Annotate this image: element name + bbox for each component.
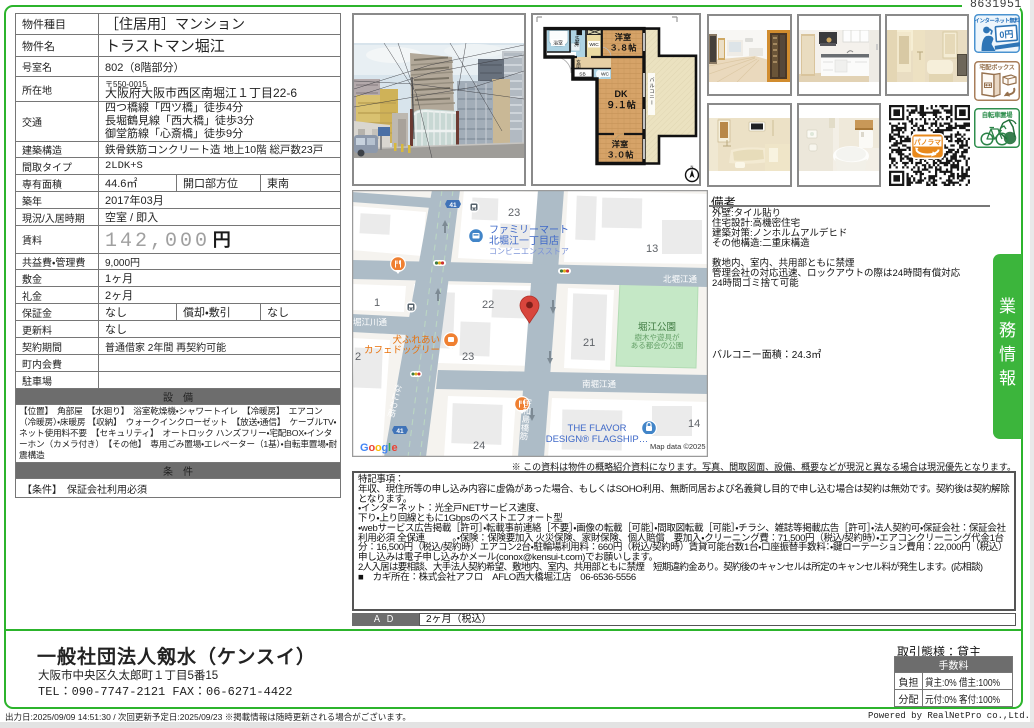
svg-text:23: 23 (462, 351, 474, 363)
svg-text:G: G (360, 442, 369, 454)
svg-text:バルコニー: バルコニー (649, 77, 655, 106)
svg-text:WC: WC (601, 72, 610, 78)
svg-text:0円: 0円 (999, 29, 1014, 40)
svg-text:洋室: 洋室 (612, 139, 628, 149)
svg-text:北堀江一丁目店: 北堀江一丁目店 (489, 235, 559, 247)
svg-text:DESIGN® FLAGSHIP…: DESIGN® FLAGSHIP… (546, 434, 649, 445)
svg-text:e: e (392, 442, 398, 454)
svg-text:南堀江通: 南堀江通 (582, 379, 617, 389)
svg-text:洗: 洗 (574, 41, 579, 48)
svg-text:Map data ©2025: Map data ©2025 (650, 442, 706, 451)
svg-text:洋室: 洋室 (615, 32, 631, 42)
svg-text:2: 2 (355, 351, 361, 363)
svg-text:41: 41 (396, 428, 404, 435)
svg-text:報: 報 (999, 369, 1016, 388)
svg-text:ファミリーマート: ファミリーマート (489, 225, 569, 236)
svg-text:浴室: 浴室 (553, 40, 563, 47)
svg-text:堀江公園: 堀江公園 (638, 322, 676, 333)
svg-text:SB: SB (579, 72, 585, 78)
svg-text:THE FLAVOR: THE FLAVOR (568, 423, 627, 434)
svg-text:コンビニエンスストア: コンビニエンスストア (489, 247, 569, 256)
svg-text:14: 14 (688, 418, 700, 430)
svg-text:カフェドッグリー: カフェドッグリー (364, 344, 440, 356)
svg-text:41: 41 (449, 202, 457, 209)
svg-text:13: 13 (646, 243, 658, 255)
svg-text:北堀江通: 北堀江通 (663, 274, 698, 284)
svg-text:情: 情 (999, 345, 1016, 364)
svg-text:パノラマ: パノラマ (914, 138, 941, 147)
svg-text:９.１帖: ９.１帖 (606, 99, 636, 110)
svg-text:自転車置場: 自転車置場 (982, 110, 1013, 119)
svg-text:３.８帖: ３.８帖 (610, 43, 637, 53)
svg-text:DK: DK (615, 89, 628, 99)
svg-text:N: N (691, 164, 694, 169)
svg-text:宅配ボックス: 宅配ボックス (979, 64, 1014, 72)
svg-text:堀江川通: 堀江川通 (353, 317, 388, 327)
svg-text:インターネット無料: インターネット無料 (975, 16, 1020, 24)
svg-text:WIC: WIC (589, 42, 599, 48)
svg-text:玄関: 玄関 (576, 58, 582, 69)
svg-text:21: 21 (583, 337, 595, 349)
svg-text:務: 務 (999, 321, 1016, 340)
svg-text:22: 22 (482, 299, 494, 311)
svg-text:1: 1 (374, 297, 380, 309)
svg-text:３.０帖: ３.０帖 (607, 150, 634, 160)
svg-text:業: 業 (999, 297, 1016, 316)
svg-text:23: 23 (508, 207, 520, 219)
svg-text:ある都会の公園: ある都会の公園 (631, 340, 684, 350)
svg-text:24: 24 (473, 440, 485, 452)
